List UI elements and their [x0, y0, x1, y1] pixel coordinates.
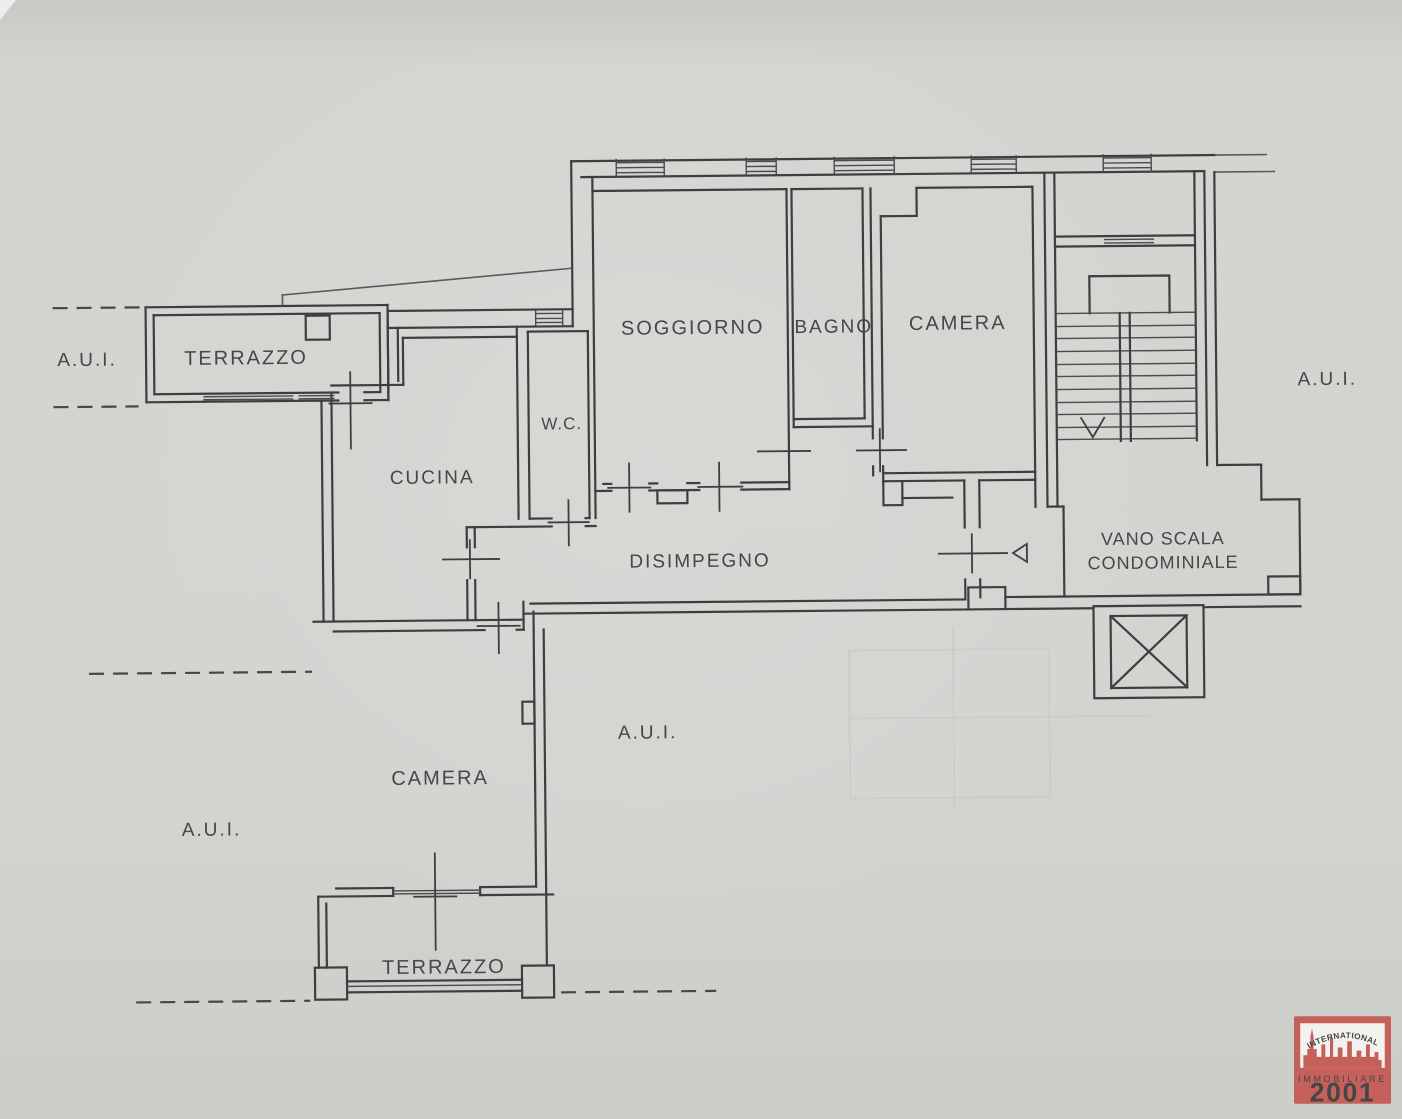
- walls: [144, 154, 1304, 1001]
- elevator-x-mark: [1111, 615, 1188, 688]
- terrace-pillar: [522, 965, 554, 997]
- door-vano-scala: [938, 533, 1027, 574]
- room-label-bagno: BAGNO: [794, 316, 873, 338]
- room-label-camera-top: CAMERA: [909, 312, 1007, 335]
- room-label-disimpegno: DISIMPEGNO: [629, 550, 771, 572]
- door-camera-bottom: [476, 602, 520, 654]
- stair-treads: [1056, 312, 1197, 439]
- wall-notch: [657, 490, 687, 503]
- room-label-wc: W.C.: [541, 414, 582, 433]
- room-label-cucina: CUCINA: [390, 467, 475, 489]
- room-label-vano-scala-1: VANO SCALA: [1101, 528, 1225, 549]
- stair-landing: [1089, 275, 1169, 313]
- window-wc-wing: [536, 309, 563, 326]
- wall-step: [1268, 576, 1300, 594]
- door-camera-top: [856, 428, 907, 472]
- stair-stringer: [1120, 313, 1131, 441]
- elevator-shaft: [1093, 605, 1204, 698]
- room-label-terrazzo-bottom: TERRAZZO: [382, 956, 506, 979]
- logo-number-text: 2001: [1310, 1077, 1375, 1107]
- label-aui-center: A.U.I.: [618, 722, 678, 744]
- wall-jog: [968, 587, 1005, 609]
- label-aui-bottom-left: A.U.I.: [182, 819, 242, 841]
- label-aui-right: A.U.I.: [1297, 369, 1357, 391]
- scanned-floor-plan-photo: A.U.I. TERRAZZO CUCINA W.C. SOGGIORNO BA…: [0, 0, 1402, 1119]
- label-aui-top-left: A.U.I.: [57, 350, 117, 372]
- terrace-pillar: [306, 316, 330, 340]
- room-label-vano-scala-2: CONDOMINIALE: [1087, 552, 1238, 573]
- door-bagno: [757, 451, 811, 452]
- agency-logo: INTERNATIONAL IMMOBILIARE 2001: [1294, 1011, 1391, 1109]
- scan-ghost-marks: [849, 626, 1153, 811]
- room-label-terrazzo-top: TERRAZZO: [184, 347, 308, 370]
- door-wc: [547, 499, 589, 546]
- window-camera-bottom: [393, 890, 480, 894]
- building-outline-lines: [281, 154, 1275, 306]
- door-soggiorno-2: [697, 462, 743, 512]
- room-label-camera-bottom: CAMERA: [391, 767, 489, 790]
- terrace-pillar: [315, 967, 347, 999]
- door-swing-arrow: [1013, 544, 1027, 562]
- floor-plan-drawing: A.U.I. TERRAZZO CUCINA W.C. SOGGIORNO BA…: [0, 0, 1402, 1119]
- door-terrazzo-bottom: [413, 852, 458, 950]
- pilaster: [522, 702, 534, 724]
- windows: [201, 154, 1158, 896]
- room-label-soggiorno: SOGGIORNO: [621, 316, 765, 339]
- door-marks: [328, 365, 1031, 952]
- window-terrace-top: [203, 396, 334, 400]
- dashed-boundary-lines: [53, 302, 717, 1003]
- staircase: [1055, 235, 1197, 441]
- room-labels: A.U.I. TERRAZZO CUCINA W.C. SOGGIORNO BA…: [57, 309, 1363, 982]
- door-cucina: [442, 539, 500, 580]
- door-soggiorno-1: [607, 462, 651, 512]
- door-terrace-top: [328, 371, 373, 449]
